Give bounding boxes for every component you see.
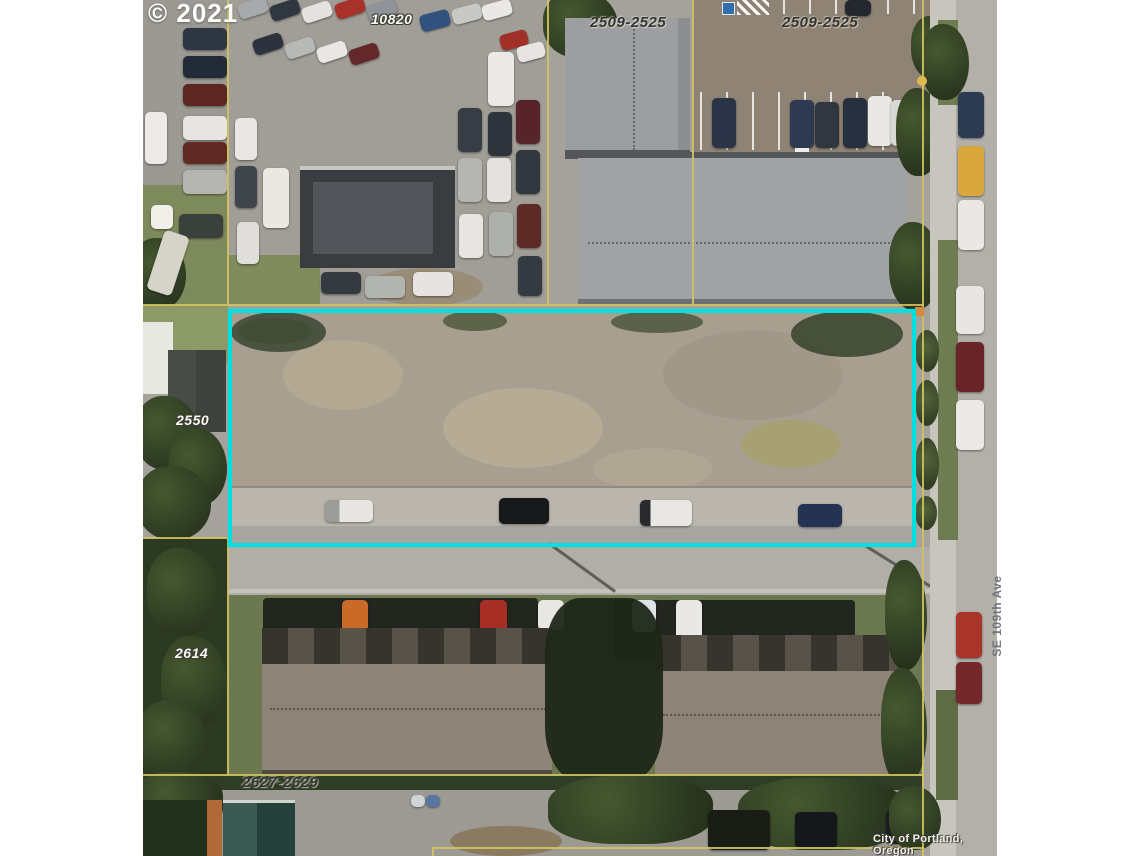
- roof-ridge: [663, 714, 899, 716]
- stall-line: [778, 92, 780, 150]
- car: [183, 116, 227, 140]
- teal-roof-house: [223, 802, 257, 856]
- parcel-boundary-line: [432, 847, 434, 856]
- car: [489, 212, 513, 256]
- car: [956, 662, 982, 704]
- crosswalk-hatch: [737, 0, 769, 15]
- parcel-label-2550: 2550: [176, 412, 209, 428]
- parcel-boundary-line: [547, 0, 549, 305]
- car: [321, 272, 361, 294]
- parcel-boundary-line: [227, 0, 229, 305]
- parcel-label-2627-2629: 2627-2629: [242, 774, 318, 791]
- car: [183, 56, 227, 78]
- stall-line: [887, 0, 889, 14]
- tree: [921, 24, 969, 100]
- tree: [881, 668, 927, 786]
- roof-ridge: [270, 708, 546, 710]
- car: [517, 204, 541, 248]
- street-label-se-109th-ave: SE 109th Ave: [990, 530, 1004, 702]
- parcel-corner-marker: [917, 76, 927, 86]
- stall-line: [783, 0, 785, 14]
- copyright-watermark: © 2021: [148, 0, 238, 29]
- tree: [147, 548, 217, 636]
- car: [458, 158, 482, 202]
- parcel-boundary-line: [922, 0, 924, 856]
- car: [488, 112, 512, 156]
- parcel-boundary-line: [692, 0, 694, 305]
- dirt-patch: [450, 826, 562, 856]
- car: [365, 276, 405, 298]
- car: [235, 118, 257, 160]
- tree-bottom-left: [143, 800, 207, 856]
- car: [956, 286, 984, 334]
- car-small: [426, 795, 440, 807]
- car: [712, 98, 736, 148]
- parcel-boundary-line: [143, 537, 229, 539]
- bush: [915, 438, 939, 490]
- car: [956, 400, 984, 450]
- stall-line: [835, 0, 837, 14]
- planting-strip: [936, 690, 958, 800]
- truck-cab: [151, 205, 173, 229]
- building-roof-gray-large: [578, 158, 908, 305]
- parcel-boundary-line: [432, 847, 924, 849]
- car: [958, 92, 984, 138]
- car: [843, 98, 867, 148]
- car: [958, 200, 984, 250]
- car: [235, 166, 257, 208]
- roof-ridge: [588, 242, 898, 244]
- aerial-photo: © 2021 10820 2509-2525 2509-2525 2550 26…: [143, 0, 997, 856]
- sidewalk-edge: [228, 589, 930, 593]
- car: [459, 214, 483, 258]
- shed-orange: [207, 800, 222, 856]
- planting-strip: [938, 240, 958, 540]
- car: [868, 96, 892, 146]
- road-ew: [228, 547, 930, 595]
- rv: [263, 168, 289, 228]
- roof-gables: [262, 628, 552, 664]
- car: [179, 214, 223, 238]
- van: [145, 112, 167, 164]
- building-roof: [313, 182, 433, 254]
- car: [790, 100, 814, 148]
- stall-line: [752, 92, 754, 150]
- parcel-boundary-line: [227, 538, 229, 775]
- car: [518, 256, 542, 296]
- car: [183, 142, 227, 164]
- car: [956, 612, 982, 658]
- building-roof-gray: [565, 18, 690, 155]
- parcel-label-10820: 10820: [371, 11, 412, 27]
- car: [458, 108, 482, 152]
- tree: [548, 776, 713, 844]
- highlighted-parcel-outline: [228, 309, 916, 547]
- car: [956, 342, 984, 392]
- stall-line: [913, 0, 915, 14]
- car: [516, 150, 540, 194]
- parcel-label-2614: 2614: [175, 645, 208, 661]
- car-dark: [795, 812, 837, 848]
- parcel-label-2509-2525-left: 2509-2525: [590, 14, 666, 31]
- stall-line: [700, 92, 702, 150]
- car: [815, 102, 839, 148]
- car: [183, 28, 227, 50]
- car: [183, 170, 227, 194]
- parcel-label-2509-2525-right: 2509-2525: [782, 14, 858, 31]
- tree: [885, 560, 927, 670]
- bush: [915, 330, 939, 372]
- stall-line: [809, 0, 811, 14]
- roof-gables: [655, 635, 905, 671]
- building-roof-gray: [678, 18, 690, 155]
- handicap-stall-icon: [722, 2, 735, 15]
- bush: [915, 496, 937, 530]
- car-small: [411, 795, 425, 807]
- car: [958, 146, 984, 196]
- roof-trim: [223, 800, 295, 803]
- parcel-boundary-line: [143, 304, 924, 306]
- tree-shadow-large: [545, 598, 663, 782]
- attribution-label: City of Portland, Oregon: [873, 833, 997, 856]
- van: [488, 52, 514, 106]
- car: [413, 272, 453, 296]
- car: [487, 158, 511, 202]
- parcel-corner-marker: [915, 307, 924, 316]
- car: [237, 222, 259, 264]
- car: [183, 84, 227, 106]
- aerial-map: © 2021 10820 2509-2525 2509-2525 2550 26…: [0, 0, 1141, 856]
- car: [516, 100, 540, 144]
- roof-ridge: [633, 22, 637, 150]
- bush: [915, 380, 939, 426]
- car-dark: [708, 810, 770, 850]
